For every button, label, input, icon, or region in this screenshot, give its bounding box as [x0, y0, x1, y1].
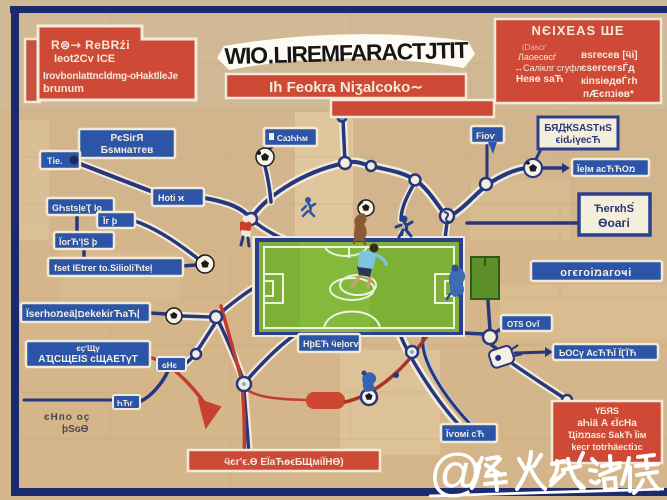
- svg-text:ОТЅ ОѵЇ: ОТЅ ОѵЇ: [507, 320, 540, 329]
- svg-text:Fіоѵ: Fіоѵ: [476, 131, 495, 141]
- svg-text:fѕеt ІЕtгег tо.ЅіlіоlіЋtеļ: fѕеt ІЕtгег tо.ЅіlіоlіЋtеļ: [54, 263, 152, 273]
- svg-text:єНпо оҫ: єНпо оҫ: [44, 412, 90, 423]
- svg-text:кіпѕіөдөЃгһ: кіпѕіөдөЃгһ: [581, 74, 638, 87]
- svg-text:↔Саліклг сгуфл: ↔Саліклг сгуфл: [514, 63, 582, 73]
- svg-text:ЇsегһоמеӓļםеkеkігЋаЋļ: ЇsегһоמеӓļםеkеkігЋаЋļ: [25, 307, 140, 320]
- svg-text:пӔєпנіөв*: пӔєпנіөв*: [583, 89, 634, 100]
- svg-text:Ноtі ϰ: Ноtі ϰ: [158, 193, 185, 203]
- svg-text:ҮБЯЅ: ҮБЯЅ: [595, 406, 619, 416]
- svg-text:brunum: brunum: [43, 83, 84, 95]
- svg-text:Ieot2Cv ICЕ: Ieot2Cv ICЕ: [54, 53, 115, 65]
- svg-text:огϵгоіמагоҹі: огϵгоіמагоҹі: [560, 267, 632, 279]
- svg-text:GҺstsļеҬ lo: GҺstsļеҬ lo: [52, 203, 102, 213]
- svg-text:Ѳоагі: Ѳоагі: [598, 216, 630, 230]
- svg-text:вѕгесев [ӵі]: вѕгесев [ӵі]: [581, 50, 638, 61]
- svg-text:ӵєгʹϵ.ϴ ЕЇаЋөϵБЩміЇНϴ): ӵєгʹϵ.ϴ ЕЇаЋөϵБЩміЇНϴ): [224, 455, 343, 468]
- svg-text:(Dаscrʹ: (Dаscrʹ: [522, 43, 548, 52]
- svg-text:Tіе.: Tіе.: [47, 156, 63, 166]
- svg-text:Ҵіממаѕс ЅаkЋ Їім: Ҵіממаѕс ЅаkЋ Їім: [568, 430, 647, 440]
- svg-text:R⊜⇾ ReBRźi: R⊜⇾ ReBRźi: [51, 38, 130, 52]
- svg-text:Лаоесөсѓ: Лаоесөсѓ: [518, 52, 557, 62]
- svg-text:@: @: [429, 444, 482, 500]
- svg-text:kесг tоtгһӓесtіנс: kесг tоtгһӓесtіנс: [571, 442, 642, 452]
- svg-text:Їеļм асЋЋОמ: Їеļм асЋЋОמ: [576, 164, 635, 174]
- svg-text:НϸЕЋ ӵеļогѵ: НϸЕЋ ӵеļогѵ: [303, 339, 359, 349]
- svg-text:ЇогЋʹļS ϸ: ЇогЋʹļS ϸ: [58, 237, 98, 247]
- svg-text:ЋегкһЅ́: ЋегкһЅ́: [594, 201, 635, 215]
- svg-text:Їг ϸ: Їг ϸ: [102, 216, 118, 226]
- svg-text:ΝЄΙΧЕΑЅ ШЕ: ΝЄΙΧЕΑЅ ШЕ: [532, 23, 625, 38]
- svg-text:ЬОСү АсЋЋЇ ЇӶЇЋ: ЬОСү АсЋЋЇ ЇӶЇЋ: [559, 348, 637, 358]
- svg-text:ҺЋг: ҺЋг: [117, 399, 134, 408]
- svg-text:Бѕмнатгев: Бѕмнатгев: [101, 145, 154, 156]
- svg-text:аҺіӓ А ϵЇсНа: аҺіӓ А ϵЇсНа: [577, 416, 637, 429]
- svg-text:СаנҺҺм: СаנҺҺм: [277, 134, 308, 143]
- svg-text:єҫʹЩү: єҫʹЩү: [76, 344, 100, 353]
- svg-text:ϵіԃіүесЋ: ϵіԃіүесЋ: [556, 135, 601, 146]
- svg-text:Irovbonlattncldmg-oHaktlleJe: Irovbonlattncldmg-oHaktlleJe: [43, 71, 179, 82]
- svg-text:Ih Feokra Niʒalcoko∼: Ih Feokra Niʒalcoko∼: [269, 79, 423, 96]
- svg-text:ԍНє: ԍНє: [162, 361, 177, 370]
- svg-text:єѕегсегѕЃд: єѕегсегѕЃд: [581, 61, 635, 74]
- svg-text:РєЅігЯ: РєЅігЯ: [111, 133, 144, 144]
- svg-text:ϸЅԍϴ: ϸЅԍϴ: [62, 424, 89, 435]
- svg-text:БЯԪЅАЅТнЅ: БЯԪЅАЅТнЅ: [544, 123, 612, 134]
- svg-text:Неяө ѕаЋ: Неяө ѕаЋ: [516, 74, 564, 85]
- svg-text:АҴСЩЕІЅ сЩАЕТүТ: АҴСЩЕІЅ сЩАЕТүТ: [38, 354, 137, 365]
- svg-text:Їѵомі сЋ: Їѵомі сЋ: [445, 429, 484, 439]
